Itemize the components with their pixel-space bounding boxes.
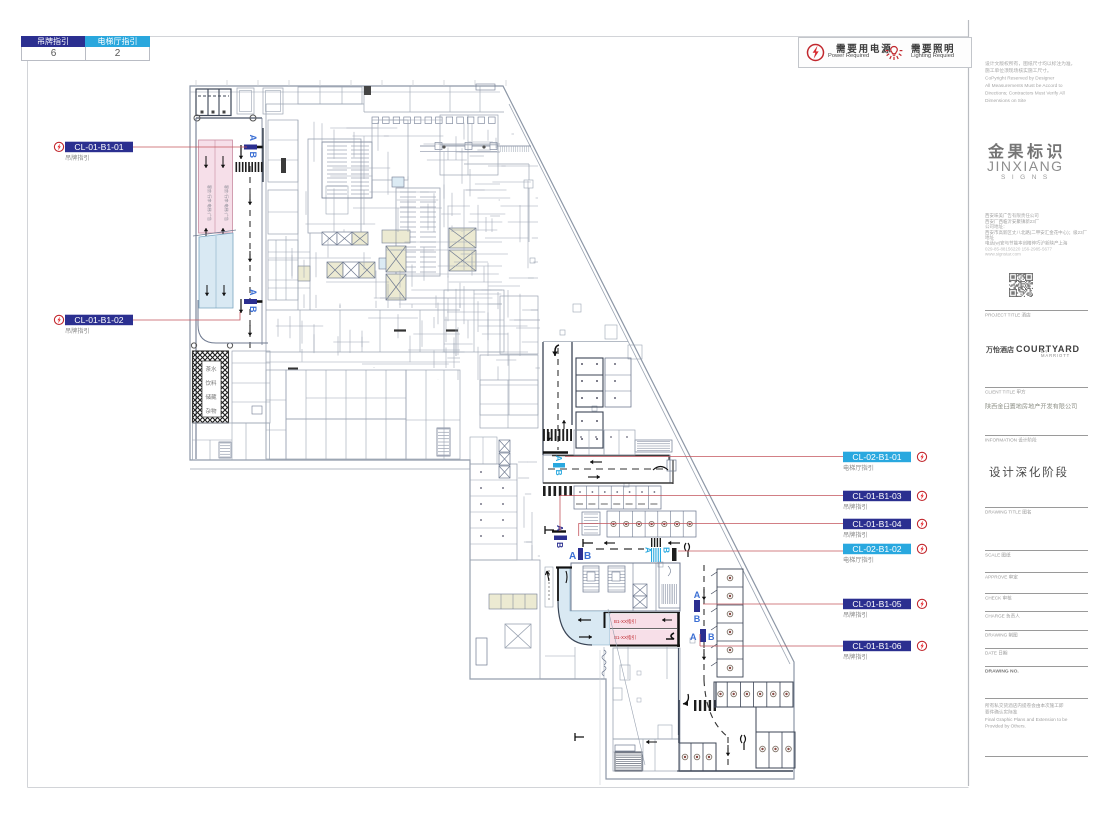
svg-text:A: A	[554, 455, 564, 461]
svg-text:A: A	[644, 547, 654, 553]
svg-text:A: A	[248, 289, 258, 296]
svg-text:CL-01-B1-04: CL-01-B1-04	[852, 519, 901, 529]
svg-text:吊牌指引: 吊牌指引	[843, 531, 868, 539]
svg-text:CL-02-B1-01: CL-02-B1-01	[852, 452, 901, 462]
svg-text:吊牌指引: 吊牌指引	[65, 327, 90, 335]
svg-text:B: B	[708, 632, 715, 642]
svg-text:CL-01-B1-01: CL-01-B1-01	[74, 142, 123, 152]
svg-text:杂物: 杂物	[205, 407, 217, 415]
svg-text:B: B	[554, 470, 564, 476]
svg-text:CL-01-B1-02: CL-01-B1-02	[74, 315, 123, 325]
svg-text:电梯厅指引: 电梯厅指引	[843, 464, 874, 472]
svg-text:B1-XX指引: B1-XX指引	[614, 634, 636, 641]
svg-text:B1-XX指引: B1-XX指引	[614, 618, 636, 625]
svg-text:A: A	[694, 590, 701, 600]
svg-text:CL-02-B1-02: CL-02-B1-02	[852, 544, 901, 554]
svg-text:CL-01-B1-03: CL-01-B1-03	[852, 491, 901, 501]
svg-text:电梯厅指引: 电梯厅指引	[843, 556, 874, 564]
svg-text:客房·行李·电梯·广告: 客房·行李·电梯·广告	[207, 185, 213, 221]
svg-text:吊牌指引: 吊牌指引	[65, 154, 90, 162]
svg-text:饮料: 饮料	[205, 379, 217, 387]
svg-text:CL-01-B1-06: CL-01-B1-06	[852, 641, 901, 651]
svg-text:吊牌指引: 吊牌指引	[843, 653, 868, 661]
svg-text:B: B	[694, 614, 701, 624]
svg-text:客房·行李·电梯·广告: 客房·行李·电梯·广告	[224, 185, 230, 221]
svg-text:B: B	[555, 542, 565, 548]
svg-text:吊牌指引: 吊牌指引	[843, 503, 868, 511]
svg-text:A: A	[569, 551, 576, 562]
svg-text:B: B	[248, 306, 258, 313]
svg-text:吊牌指引: 吊牌指引	[843, 611, 868, 619]
svg-text:B: B	[248, 152, 258, 159]
svg-text:茶水: 茶水	[205, 365, 217, 373]
svg-text:B: B	[662, 547, 672, 553]
svg-text:B: B	[584, 551, 591, 562]
svg-text:CL-01-B1-05: CL-01-B1-05	[852, 599, 901, 609]
svg-text:A: A	[248, 135, 258, 142]
svg-text:A: A	[690, 632, 697, 642]
svg-text:储藏: 储藏	[205, 393, 217, 401]
